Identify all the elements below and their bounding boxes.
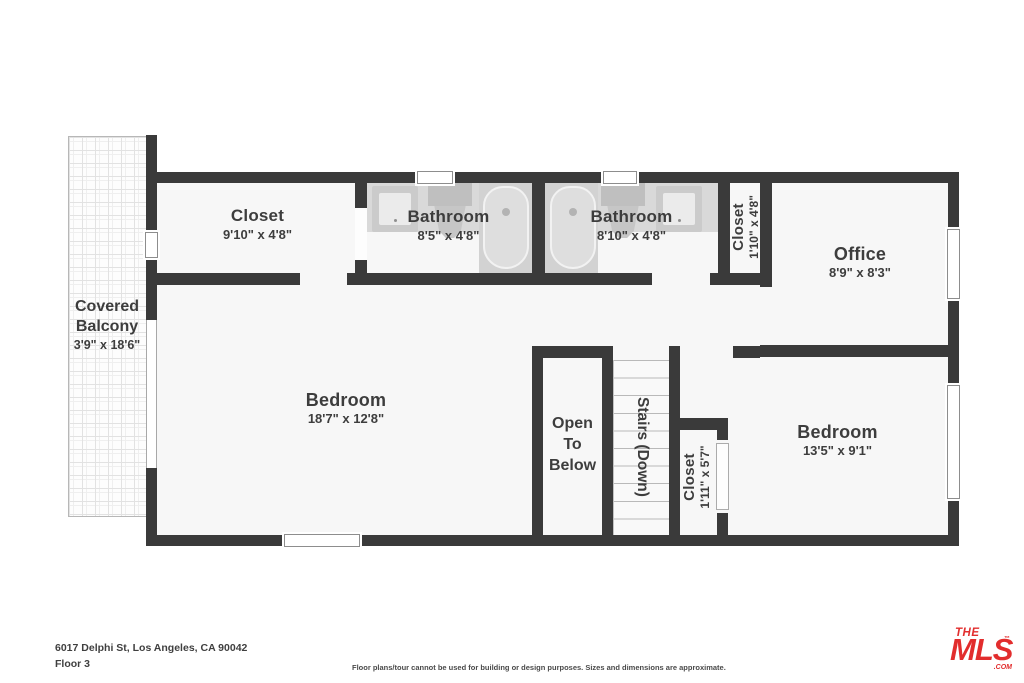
wall: [717, 418, 728, 440]
wall: [733, 346, 760, 358]
window-marker: [945, 383, 962, 501]
room-label-closet1: Closet 9'10" x 4'8": [160, 206, 355, 243]
room-name: Closet: [681, 453, 698, 501]
wall: [717, 513, 728, 545]
logo-com-text: .COM: [994, 664, 1012, 671]
room-name: Bathroom: [545, 207, 718, 227]
label-line2: To: [532, 434, 613, 455]
window-marker: [415, 169, 455, 186]
room-name: Closet: [730, 203, 747, 251]
wall: [532, 346, 613, 358]
room-label-bathroom2: Bathroom 8'10" x 4'8": [545, 207, 718, 244]
room-name: Office: [772, 244, 948, 264]
room-dimensions: 18'7" x 12'8": [160, 410, 532, 427]
room-dimensions: 8'10" x 4'8": [545, 227, 718, 244]
logo-trademark: ™: [1004, 636, 1010, 642]
window-marker: [282, 532, 362, 549]
room-name-line1: Covered: [62, 297, 152, 317]
floor-number: Floor 3: [55, 658, 90, 670]
room-dimensions: 13'5" x 9'1": [728, 442, 947, 459]
wall: [157, 273, 300, 285]
stairs-text: Stairs (Down): [634, 397, 651, 497]
stairs-label: Stairs (Down): [631, 387, 651, 507]
the-mls-logo: THE MLS ™ .COM: [950, 627, 1012, 675]
room-label-bathroom1: Bathroom 8'5" x 4'8": [367, 207, 530, 244]
label-line1: Open: [532, 413, 613, 434]
room-label-covered-balcony: Covered Balcony 3'9" x 18'6": [62, 297, 152, 354]
window-marker: [601, 169, 639, 186]
floor-plan-page: Closet 9'10" x 4'8" Bathroom 8'5" x 4'8"…: [0, 0, 1024, 683]
window-marker: [143, 230, 160, 260]
wall: [347, 273, 652, 285]
room-dimensions: 1'11" x 5'7": [698, 445, 713, 508]
door-opening: [355, 208, 367, 260]
wall: [146, 172, 959, 183]
room-dimensions: 3'9" x 18'6": [62, 337, 152, 354]
wall: [146, 535, 959, 546]
property-address: 6017 Delphi St, Los Angeles, CA 90042: [55, 642, 247, 654]
room-dimensions: 1'10" x 4'8": [747, 195, 762, 259]
room-dimensions: 8'5" x 4'8": [367, 227, 530, 244]
room-name: Closet: [160, 206, 355, 226]
label-line3: Below: [532, 455, 613, 476]
room-dimensions: 8'9" x 8'3": [772, 264, 948, 281]
room-label-office: Office 8'9" x 8'3": [772, 244, 948, 281]
room-name: Bedroom: [728, 422, 947, 442]
room-label-bedroom1: Bedroom 18'7" x 12'8": [160, 390, 532, 427]
room-name-line2: Balcony: [62, 317, 152, 337]
wall: [760, 345, 959, 357]
room-dimensions: 9'10" x 4'8": [160, 226, 355, 243]
room-name: Bathroom: [367, 207, 530, 227]
room-label-bedroom2: Bedroom 13'5" x 9'1": [728, 422, 947, 459]
room-label-closet2: Closet 1'10" x 4'8": [728, 177, 764, 277]
room-name: Bedroom: [160, 390, 532, 410]
room-label-open-to-below: Open To Below: [532, 413, 613, 476]
disclaimer-text: Floor plans/tour cannot be used for buil…: [352, 663, 726, 672]
wall: [532, 182, 545, 273]
room-label-closet3: Closet 1'11" x 5'7": [679, 427, 715, 527]
